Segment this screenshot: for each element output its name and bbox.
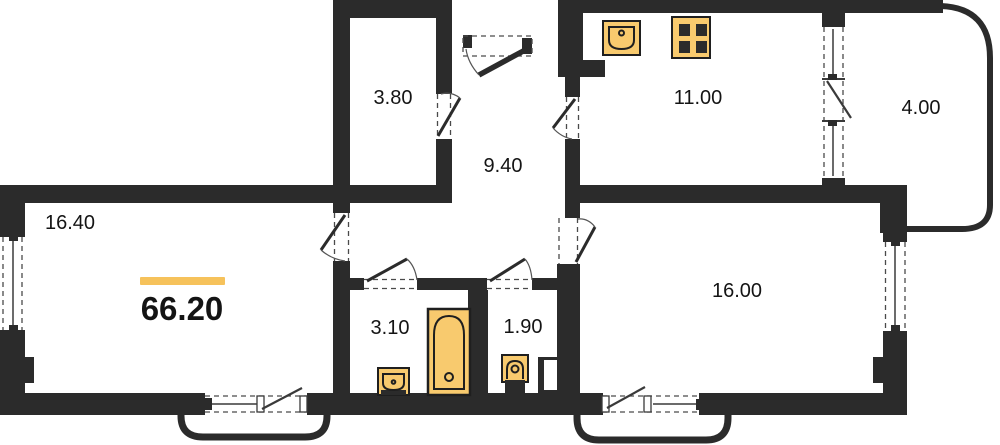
door-living	[321, 213, 349, 261]
kitchen-sink-icon	[603, 21, 640, 55]
window-living-left	[3, 233, 22, 333]
door-wardrobe	[438, 93, 461, 139]
stove-icon	[672, 17, 710, 58]
door-kitchen	[553, 97, 579, 139]
room-area-balcony: 4.00	[902, 97, 941, 119]
room-area-kitchen: 11.00	[674, 87, 723, 109]
washbasin-icon	[378, 368, 409, 395]
balcony-door-living	[205, 388, 307, 412]
room-area-wardrobe: 3.80	[374, 87, 413, 109]
walls	[0, 0, 943, 415]
room-area-living: 16.40	[45, 212, 95, 234]
duct-niche	[544, 360, 557, 390]
door-bedroom	[559, 218, 595, 264]
door-wc	[487, 259, 532, 289]
door-bathroom	[364, 259, 417, 289]
entrance-door	[463, 36, 532, 75]
room-area-hallway: 9.40	[484, 155, 523, 177]
balcony-outline-bottom-left	[181, 412, 327, 437]
room-area-bedroom: 16.00	[712, 280, 762, 302]
balcony-door-kitchen	[822, 27, 851, 178]
window-bedroom-right	[886, 238, 906, 333]
accent-bar	[140, 277, 225, 285]
total-area-block: 66.20	[140, 277, 225, 327]
bathtub-icon	[428, 309, 470, 395]
toilet-icon	[502, 355, 528, 395]
floor-plan: 16.40 3.80 9.40 11.00 4.00 16.00 3.10 1.…	[0, 0, 1000, 445]
balcony-outline-bottom-center	[577, 412, 728, 440]
room-area-bathroom: 3.10	[371, 317, 410, 339]
floor-plan-canvas: 16.40 3.80 9.40 11.00 4.00 16.00 3.10 1.…	[0, 0, 1000, 445]
balcony-door-bedroom	[602, 387, 705, 412]
room-area-wc: 1.90	[504, 316, 543, 338]
total-area-label: 66.20	[141, 290, 224, 327]
